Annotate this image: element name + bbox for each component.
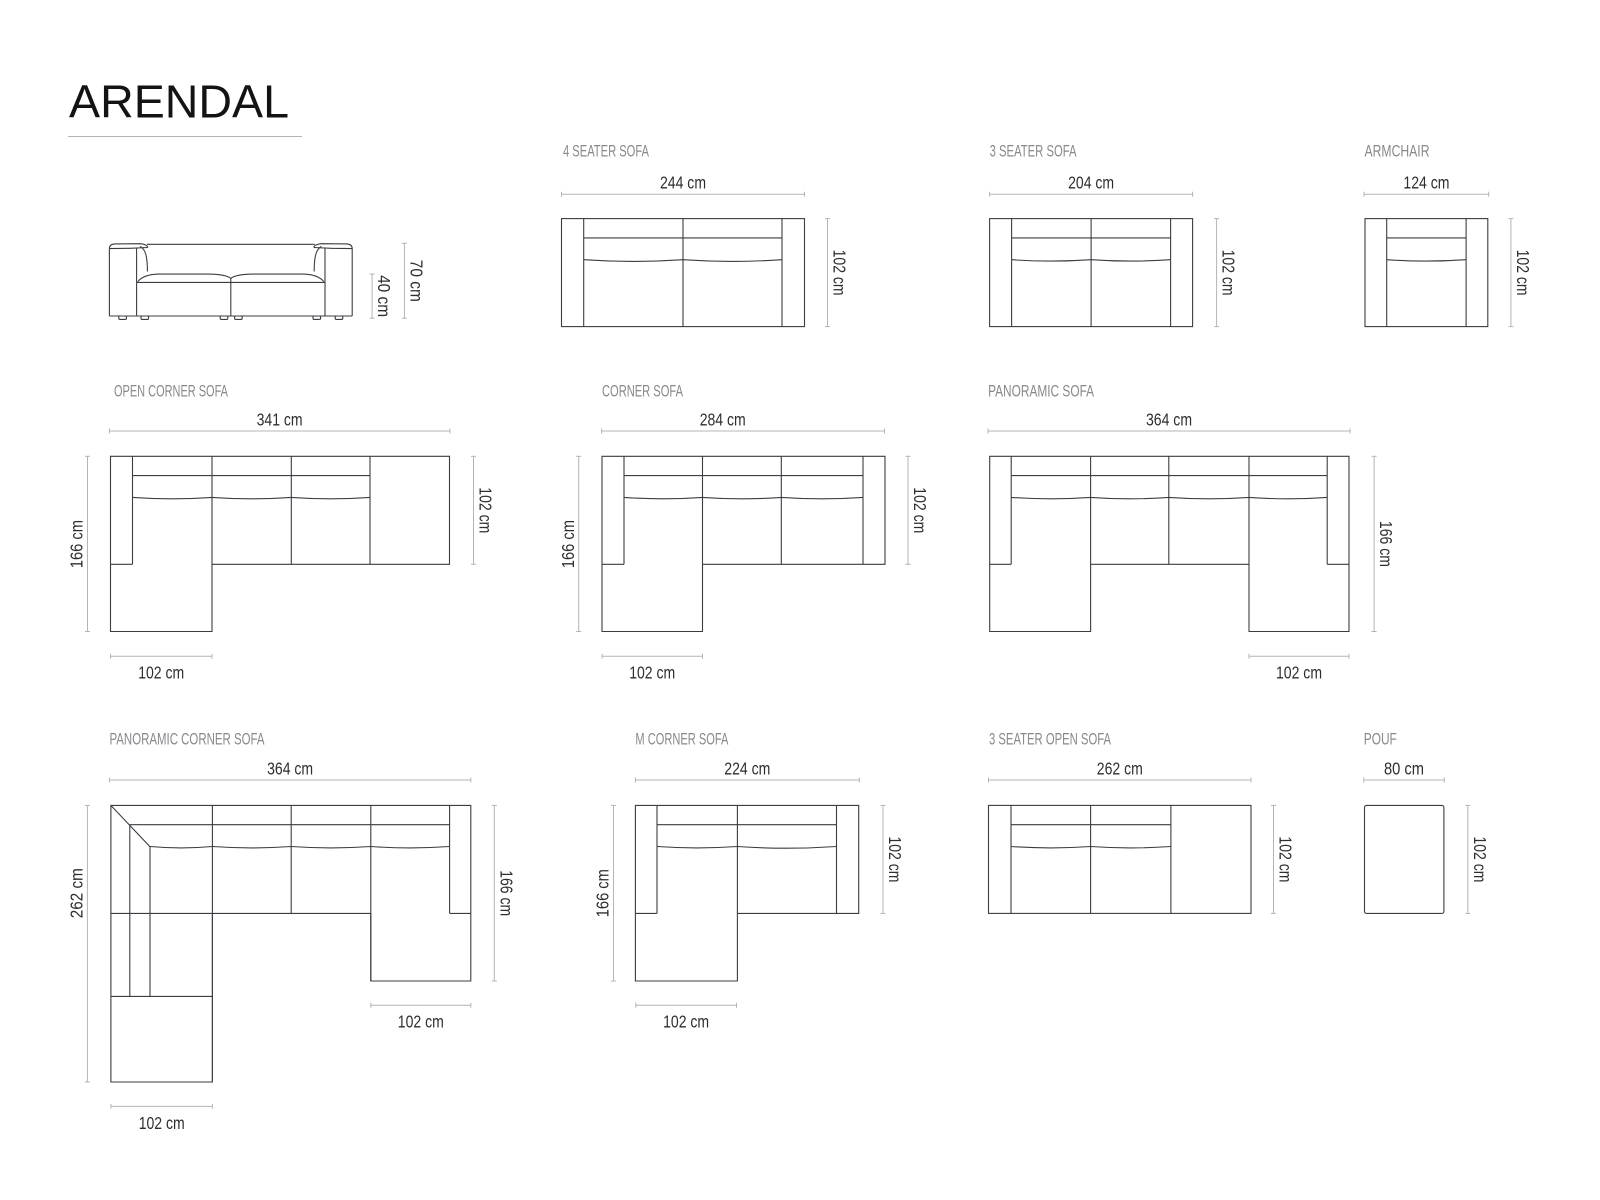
- svg-text:262 cm: 262 cm: [1097, 759, 1143, 779]
- svg-text:341 cm: 341 cm: [257, 410, 303, 430]
- svg-text:M CORNER SOFA: M CORNER SOFA: [635, 729, 728, 748]
- svg-text:70 cm: 70 cm: [406, 260, 426, 302]
- svg-text:224 cm: 224 cm: [724, 759, 770, 779]
- svg-text:124 cm: 124 cm: [1403, 173, 1449, 193]
- svg-text:102 cm: 102 cm: [830, 250, 850, 296]
- svg-text:102 cm: 102 cm: [138, 663, 184, 683]
- svg-text:244 cm: 244 cm: [660, 173, 706, 193]
- svg-text:166 cm: 166 cm: [593, 869, 613, 917]
- svg-text:102 cm: 102 cm: [910, 487, 930, 533]
- svg-text:102 cm: 102 cm: [139, 1113, 185, 1133]
- svg-text:284 cm: 284 cm: [700, 410, 746, 430]
- svg-text:166 cm: 166 cm: [496, 870, 516, 916]
- svg-text:POUF: POUF: [1364, 729, 1397, 748]
- svg-text:PANORAMIC SOFA: PANORAMIC SOFA: [988, 381, 1094, 400]
- svg-text:204 cm: 204 cm: [1068, 173, 1114, 193]
- svg-text:ARMCHAIR: ARMCHAIR: [1365, 142, 1430, 161]
- svg-text:166 cm: 166 cm: [558, 520, 578, 568]
- svg-text:364 cm: 364 cm: [1146, 410, 1192, 430]
- svg-text:ARENDAL: ARENDAL: [69, 76, 289, 128]
- svg-text:102 cm: 102 cm: [1219, 250, 1239, 296]
- svg-text:102 cm: 102 cm: [398, 1012, 444, 1032]
- svg-text:CORNER SOFA: CORNER SOFA: [602, 381, 683, 400]
- svg-text:102 cm: 102 cm: [1276, 836, 1296, 882]
- svg-text:166 cm: 166 cm: [67, 520, 87, 568]
- svg-text:102 cm: 102 cm: [476, 487, 496, 533]
- svg-text:102 cm: 102 cm: [663, 1012, 709, 1032]
- svg-text:PANORAMIC CORNER SOFA: PANORAMIC CORNER SOFA: [110, 729, 265, 748]
- svg-text:OPEN CORNER SOFA: OPEN CORNER SOFA: [114, 381, 228, 400]
- svg-text:102 cm: 102 cm: [1470, 836, 1490, 882]
- svg-text:40 cm: 40 cm: [374, 275, 394, 317]
- svg-text:102 cm: 102 cm: [1276, 663, 1322, 683]
- svg-text:262 cm: 262 cm: [67, 868, 87, 918]
- svg-text:166 cm: 166 cm: [1376, 521, 1396, 567]
- svg-text:80 cm: 80 cm: [1384, 759, 1424, 779]
- svg-text:4 SEATER SOFA: 4 SEATER SOFA: [563, 142, 649, 161]
- svg-text:3 SEATER SOFA: 3 SEATER SOFA: [990, 142, 1077, 161]
- svg-text:364 cm: 364 cm: [267, 759, 313, 779]
- svg-text:102 cm: 102 cm: [885, 836, 905, 882]
- svg-text:3 SEATER OPEN SOFA: 3 SEATER OPEN SOFA: [989, 729, 1111, 748]
- svg-text:102 cm: 102 cm: [629, 663, 675, 683]
- svg-text:102 cm: 102 cm: [1513, 250, 1533, 296]
